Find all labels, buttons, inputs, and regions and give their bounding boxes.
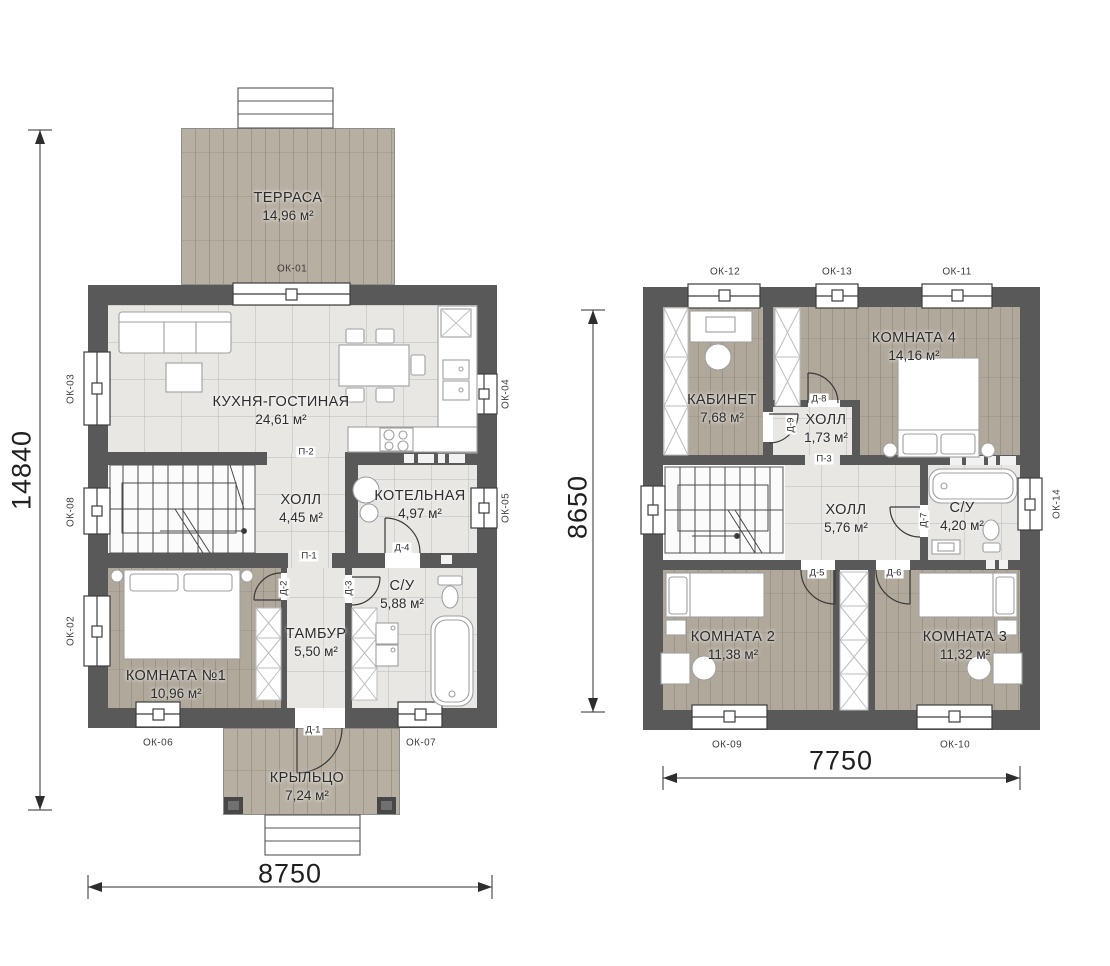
- door-label-p1: П-1: [299, 551, 318, 562]
- wall-r23-a: [833, 570, 840, 710]
- room-name: КОМНАТА 2: [691, 629, 775, 645]
- window-label-ok13: ОК-13: [822, 267, 852, 278]
- room-label-hall-small: ХОЛЛ 1,73 м²: [804, 412, 848, 445]
- room-name: ХОЛЛ: [279, 492, 323, 508]
- room-area: 1,73 м²: [804, 430, 848, 445]
- room-area: 5,76 м²: [824, 520, 868, 535]
- room-label-bathroom2: С/У 4,20 м²: [940, 500, 984, 533]
- stairs1-area: [108, 465, 255, 553]
- door-label-d3: Д-3: [344, 579, 355, 598]
- room-name: КОМНАТА 4: [872, 330, 956, 346]
- room-label-room4: КОМНАТА 4 14,16 м²: [872, 330, 956, 363]
- room-name: ТАМБУР: [286, 626, 347, 642]
- window-label-ok07: ОК-07: [406, 738, 436, 749]
- room-area: 14,96 м²: [254, 208, 323, 223]
- wall-band-a: [108, 553, 288, 568]
- door-label-d7: Д-7: [919, 511, 930, 530]
- room-label-terrace: ТЕРРАСА 14,96 м²: [254, 190, 323, 223]
- window-label-ok12: ОК-12: [710, 267, 740, 278]
- room-label-bathroom1: С/У 5,88 м²: [380, 578, 424, 611]
- door-label-d6: Д-6: [885, 568, 904, 579]
- room-label-kitchen: КУХНЯ-ГОСТИНАЯ 24,61 м²: [212, 394, 349, 427]
- room-name: КОТЕЛЬНАЯ: [374, 488, 465, 504]
- wall-hs-right: [852, 400, 860, 455]
- room-name: КРЫЛЬЦО: [270, 770, 344, 786]
- wall-hs-top-b: [840, 400, 852, 407]
- room-area: 24,61 м²: [212, 412, 349, 427]
- room-label-office: КАБИНЕТ 7,68 м²: [687, 392, 757, 425]
- window-label-ok03: ОК-03: [66, 374, 77, 404]
- window-label-ok10: ОК-10: [940, 740, 970, 751]
- window-label-ok01: ОК-01: [277, 264, 307, 275]
- wall-band-c: [420, 553, 477, 568]
- room-label-hall2: ХОЛЛ 5,76 м²: [824, 502, 868, 535]
- room-label-hall1: ХОЛЛ 4,45 м²: [279, 492, 323, 525]
- door-label-d9: Д-9: [786, 416, 797, 435]
- door-gap-d9: [763, 412, 773, 442]
- wall-office-a: [763, 307, 773, 412]
- window-label-ok04: ОК-04: [501, 379, 512, 409]
- window-label-ok14: ОК-14: [1052, 489, 1063, 519]
- door-label-p3: П-3: [814, 454, 833, 465]
- window-label-ok09: ОК-09: [712, 740, 742, 751]
- room-label-room1: КОМНАТА №1 10,96 м²: [126, 668, 226, 701]
- window-label-ok02: ОК-02: [66, 616, 77, 646]
- room-name: КОМНАТА 3: [923, 629, 1007, 645]
- room-area: 4,20 м²: [940, 518, 984, 533]
- door-label-p2: П-2: [296, 447, 315, 458]
- wall-office-b: [763, 442, 773, 455]
- room-area: 14,16 м²: [872, 348, 956, 363]
- window-label-ok11: ОК-11: [942, 267, 971, 278]
- dim-height-floor2: 8650: [563, 475, 594, 539]
- closet-mid-area: [840, 570, 868, 710]
- wall-vest-a: [345, 568, 352, 575]
- dim-width-floor1: 8750: [258, 859, 322, 890]
- floorplan-canvas: ТЕРРАСА 14,96 м² КУХНЯ-ГОСТИНАЯ 24,61 м²…: [0, 0, 1110, 966]
- window-label-ok06: ОК-06: [143, 738, 173, 749]
- office-floor: [663, 307, 763, 455]
- wall2-band2-c: [910, 560, 1020, 570]
- wall-hall-su-a: [920, 465, 928, 505]
- room-name: ХОЛЛ: [804, 412, 848, 428]
- room-label-vestibule: ТАМБУР 5,50 м²: [286, 626, 347, 659]
- wall-boiler-left: [345, 465, 358, 553]
- room-area: 11,38 м²: [691, 647, 775, 662]
- wall-hs-top-a: [773, 400, 808, 407]
- room-label-room3: КОМНАТА 3 11,32 м²: [923, 629, 1007, 662]
- room-name: КАБИНЕТ: [687, 392, 757, 408]
- room-name: КОМНАТА №1: [126, 668, 226, 684]
- wall-kitchen-b: [345, 452, 477, 465]
- room-name: С/У: [940, 500, 984, 516]
- window-label-ok05: ОК-05: [501, 493, 512, 523]
- wall-kitchen-a: [108, 452, 267, 465]
- room-label-porch: КРЫЛЬЦО 7,24 м²: [270, 770, 344, 803]
- wall-hall-su-b: [920, 537, 928, 560]
- room-area: 5,50 м²: [286, 644, 347, 659]
- door-label-d5: Д-5: [808, 568, 827, 579]
- window-label-ok08: ОК-08: [66, 497, 77, 527]
- wall2-band1-b: [840, 455, 1020, 465]
- room-name: С/У: [380, 578, 424, 594]
- wall2-band2-b: [835, 560, 876, 570]
- door-gap-d4: [385, 553, 420, 568]
- wall-band-b: [332, 553, 385, 568]
- wall-r23-b: [868, 570, 875, 710]
- wall2-band1-a: [663, 455, 805, 465]
- room-area: 4,45 м²: [279, 510, 323, 525]
- door-label-d1: Д-1: [304, 725, 323, 736]
- room-label-room2: КОМНАТА 2 11,38 м²: [691, 629, 775, 662]
- kitchen-floor: [108, 305, 477, 453]
- room-area: 11,32 м²: [923, 647, 1007, 662]
- room-area: 7,24 м²: [270, 788, 344, 803]
- door-label-d4: Д-4: [393, 543, 412, 554]
- room-name: ХОЛЛ: [824, 502, 868, 518]
- room-area: 5,88 м²: [380, 596, 424, 611]
- door-label-d2: Д-2: [279, 579, 290, 598]
- room-label-boiler: КОТЕЛЬНАЯ 4,97 м²: [374, 488, 465, 521]
- room-area: 4,97 м²: [374, 506, 465, 521]
- stairs2-area: [663, 465, 785, 560]
- room-area: 10,96 м²: [126, 686, 226, 701]
- room-name: ТЕРРАСА: [254, 190, 323, 206]
- room-area: 7,68 м²: [687, 410, 757, 425]
- dim-width-floor2: 7750: [809, 746, 873, 777]
- door-label-d8: Д-8: [810, 394, 829, 405]
- dim-height-floor1: 14840: [7, 430, 38, 510]
- wall2-band2-a: [663, 560, 801, 570]
- room-name: КУХНЯ-ГОСТИНАЯ: [212, 394, 349, 410]
